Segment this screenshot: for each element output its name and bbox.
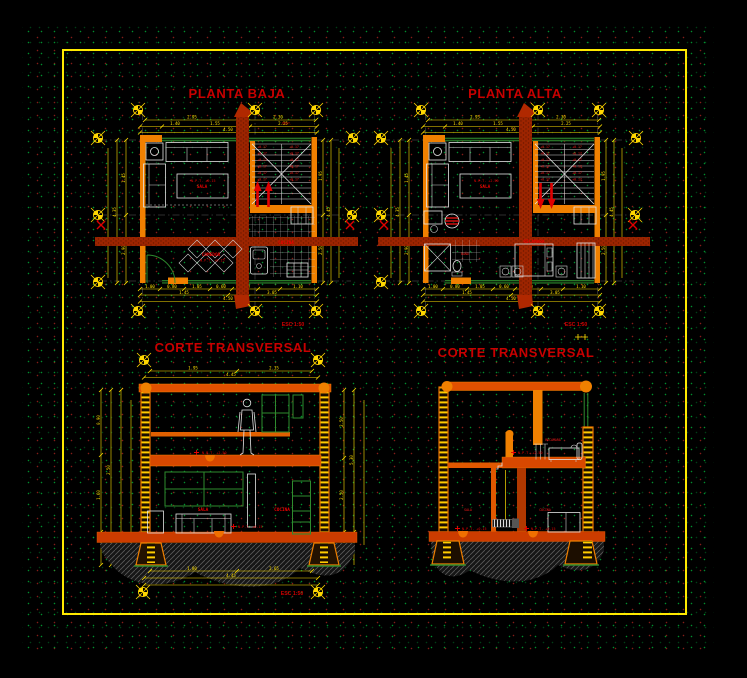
dim-label: 0.80 [167, 284, 177, 289]
section-structure [429, 381, 605, 542]
column-right [583, 427, 593, 540]
stair-step-label: +0.17 [289, 145, 299, 149]
dim-label: 5.30 [349, 455, 354, 465]
planta-alta-title: PLANTA ALTA [468, 86, 562, 101]
scale-label: ESC 1:50 [281, 591, 304, 597]
planta-baja-drawing: PLANTA BAJA 2.95 2.30 1.40 1.55 2.25 4.5… [85, 80, 377, 335]
dim-label: 2.30 [273, 115, 283, 120]
pillar-mid [506, 432, 514, 458]
dim-label: 2.50 [601, 245, 606, 255]
level-label-upper: N.P.T. +2.50 [202, 451, 227, 455]
scale-label: ESC 1:50 [282, 322, 305, 328]
room-label-sala: SALA [198, 507, 209, 513]
stair-step-label: +0.17 [540, 145, 550, 149]
dim-label: 0.60 [499, 284, 509, 289]
room-label-sala: SALA [197, 184, 208, 190]
section-cut-band-vertical [234, 103, 252, 309]
corte-transversal-izquierdo: CORTE TRANSVERSAL 1.95 2.35 4.45 0.90 1.… [88, 333, 380, 605]
corte-derecho-title: CORTE TRANSVERSAL [438, 345, 595, 360]
projection-label: PROY. [282, 121, 292, 125]
dimension-lines-bottom: 1.00 0.80 1.05 0.60 1.00 1.10 1.45 3.05 … [421, 284, 602, 304]
dim-label: 4.50 [506, 127, 516, 132]
dim-label: 1.55 [210, 121, 220, 126]
stair-step-label: +0.17 [289, 178, 299, 182]
stair-step-label: +0.17 [289, 158, 299, 162]
level-mark-symbol [231, 524, 236, 529]
dim-label: 0.80 [450, 284, 460, 289]
dim-label: 1.95 [188, 366, 198, 371]
sofa [176, 514, 231, 533]
mid-bar-left [448, 463, 502, 469]
stair-step-label: +0.17 [540, 171, 550, 175]
stair-step-label: +0.17 [289, 171, 299, 175]
sala-level-label: N.P.T. +0.15 [191, 179, 216, 183]
dim-label: 2.95 [470, 115, 480, 120]
stair-step-label: +0.17 [257, 152, 267, 156]
room-label-cocina: COCINA [539, 508, 551, 512]
room-label-bano: BAÑO [461, 251, 469, 256]
section-cut-band-horizontal [378, 237, 650, 246]
dimension-lines-right: 1.95 2.50 4.45 [318, 138, 339, 285]
comedor-level-label: N.P.T. +0.15 [200, 259, 225, 263]
dim-label: 4.35 [112, 207, 117, 217]
dimension-lines-right: 1.95 2.50 4.45 [601, 138, 622, 285]
corte-transversal-derecho: CORTE TRANSVERSAL REC [400, 333, 640, 605]
window-upper-small [293, 395, 303, 418]
dim-label: 1.40 [453, 121, 463, 126]
roof-slab [139, 384, 331, 392]
stair-step-label: +0.17 [289, 152, 299, 156]
dimension-lines-top: 2.95 2.30 1.40 1.55 2.25 4.50 [421, 115, 602, 135]
dim-label: 1.00 [145, 284, 155, 289]
cocina: COCINA [249, 216, 315, 277]
window-right [584, 393, 588, 427]
dim-label: 4.45 [326, 207, 331, 217]
planta-alta-drawing: PLANTA ALTA 2.95 2.30 1.40 1.55 2.25 4.5… [368, 80, 660, 335]
planta-baja-title: PLANTA BAJA [189, 86, 286, 101]
dim-label: 0.90 [96, 415, 101, 425]
dimension-lines-top: 2.95 2.30 1.40 1.55 2.25 4.50 PROY. [138, 115, 319, 135]
stair-step-label: +0.17 [540, 178, 550, 182]
dim-label: 3.05 [550, 290, 560, 295]
stair-step-label: +0.17 [540, 158, 550, 162]
dim-label: 1.55 [493, 121, 503, 126]
stair-step-label: +0.17 [289, 165, 299, 169]
dim-label: 1.45 [121, 173, 126, 183]
section-cut-band-horizontal [95, 237, 358, 246]
stair-step-label: +0.17 [572, 171, 582, 175]
stair-step-label: +0.17 [540, 152, 550, 156]
rail-strip [151, 432, 290, 437]
level-label-lower: N.P.T. +0.15 [238, 525, 263, 529]
level-label-sala: N.P.T. +0.15 [462, 527, 487, 531]
stair-step-label: +0.17 [572, 165, 582, 169]
closet [293, 481, 311, 534]
room-label-comedor: COMEDOR [202, 252, 221, 258]
dim-label: 1.05 [192, 284, 202, 289]
cad-canvas: PLANTA BAJA 2.95 2.30 1.40 1.55 2.25 4.5… [0, 0, 747, 678]
dim-label: 3.05 [267, 290, 277, 295]
dim-label: 2.25 [561, 121, 571, 126]
dimension-lines-bottom: 1.00 0.80 1.05 0.60 1.00 1.10 1.45 3.05 … [138, 284, 319, 304]
stair-step-label: +0.17 [572, 178, 582, 182]
roof-slab [449, 382, 584, 391]
stair-step-label: +0.17 [540, 165, 550, 169]
room-label-sala: SALA [480, 184, 491, 190]
corte-izquierdo-title: CORTE TRANSVERSAL [155, 340, 312, 355]
stair-step-label: +0.17 [257, 158, 267, 162]
sala-furniture: N.P.T. +0.15 SALA [144, 143, 233, 208]
dim-label: 1.45 [462, 290, 472, 295]
dim-label: 2.95 [187, 115, 197, 120]
room-label-cocina: COCINA [274, 507, 290, 513]
dim-label: 1.05 [475, 284, 485, 289]
column-left [439, 387, 448, 540]
stair-step-label: +0.17 [257, 165, 267, 169]
stair-step-label: +0.17 [257, 178, 267, 182]
dim-label: 0.60 [216, 284, 226, 289]
dim-label: 1.00 [428, 284, 438, 289]
dim-label: 4.50 [506, 296, 516, 301]
stair-step-label: +0.17 [572, 158, 582, 162]
sala-level-label: N.P.T. +2.50 [474, 179, 499, 183]
stair-up-arrows [254, 181, 273, 207]
dim-label: 1.45 [404, 173, 409, 183]
dimension-lines-left: 1.45 2.90 4.35 [391, 138, 411, 285]
stair-step-label: +0.17 [572, 145, 582, 149]
room-label-sala: SALA [464, 508, 472, 512]
scale-label: ESC 1:50 [565, 322, 588, 328]
leader-ticks [575, 334, 588, 340]
section-structure [97, 383, 357, 546]
level-mark-symbol [194, 450, 199, 455]
stair-step-label: +0.17 [257, 145, 267, 149]
stair-step-label: +0.17 [572, 152, 582, 156]
dim-label: 1.80 [187, 566, 197, 571]
dim-label: 4.45 [226, 573, 236, 578]
human-figure [238, 399, 256, 455]
column-right [320, 389, 329, 545]
dim-label: 1.40 [170, 121, 180, 126]
dim-label: 2.50 [318, 245, 323, 255]
room-label-recamara: RECAMARA [523, 239, 545, 245]
mid-slab [150, 455, 321, 466]
room-label-cocina: COCINA [278, 240, 294, 246]
comedor: COMEDOR N.P.T. +0.15 [147, 240, 242, 283]
dim-label: 2.90 [121, 245, 126, 255]
door [248, 474, 256, 527]
dim-label: 1.60 [96, 490, 101, 500]
dimension-lines-left: 1.45 2.90 4.35 [108, 138, 128, 285]
dimension-lines-top: 1.95 2.35 4.45 [142, 366, 320, 380]
level-label-upper: N.P.T. +2.50 [518, 451, 543, 455]
column-left [141, 389, 150, 545]
dim-label: 1.45 [179, 290, 189, 295]
room-label-recamara: RECAMARA [545, 438, 560, 442]
dim-label: 2.50 [339, 417, 344, 427]
dim-label: 2.90 [404, 245, 409, 255]
dim-label: 4.50 [223, 296, 233, 301]
upper-storey: N.P.T. +2.50 [194, 395, 303, 462]
section-cut-band-vertical [517, 103, 535, 309]
stair-step-label: +0.17 [257, 171, 267, 175]
dim-label: 2.50 [339, 490, 344, 500]
mid-slab [502, 457, 586, 468]
wall-upper [533, 390, 543, 445]
floor-beam [97, 532, 357, 543]
dim-label: 2.65 [269, 566, 279, 571]
dim-label: 4.45 [226, 372, 236, 377]
dim-label: 4.50 [223, 127, 233, 132]
dim-label: 2.50 [106, 465, 111, 475]
dim-label: 1.10 [576, 284, 586, 289]
dim-label: 1.95 [318, 171, 323, 181]
dim-label: 2.35 [269, 366, 279, 371]
dim-label: 4.35 [395, 207, 400, 217]
level-label-cocina: N.P.T. +0.15 [531, 527, 556, 531]
dim-label: 1.95 [601, 171, 606, 181]
sala-furniture: N.P.T. +2.50 SALA [424, 143, 511, 233]
dim-label: 1.10 [293, 284, 303, 289]
dim-label: 4.45 [609, 207, 614, 217]
dim-label: 2.30 [556, 115, 566, 120]
lower-storey: SALA COCINA N.P.T. +0.15 [148, 472, 311, 538]
floor-beam [429, 532, 605, 542]
